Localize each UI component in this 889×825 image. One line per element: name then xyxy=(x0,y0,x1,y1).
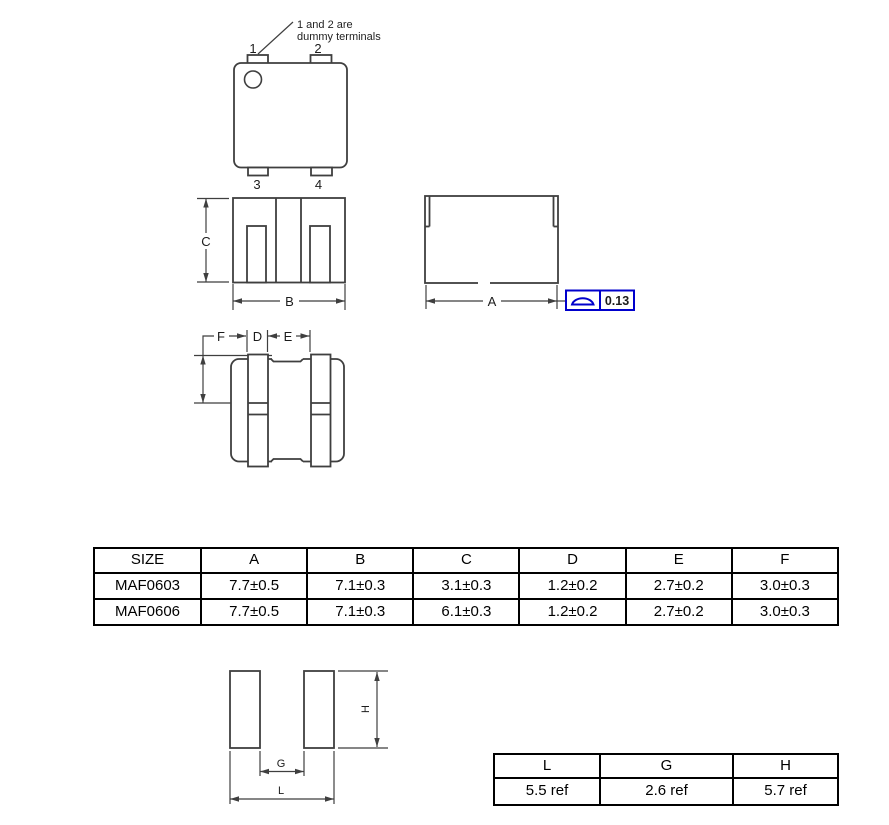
dim-b-label: B xyxy=(285,294,294,309)
cell-b: 7.1±0.3 xyxy=(307,599,413,625)
terminal-4-pad xyxy=(311,168,332,176)
top-view: 1 and 2 are dummy terminals 1 2 3 4 xyxy=(234,19,381,192)
col-header-h: H xyxy=(733,754,838,778)
pin1-indicator-circle xyxy=(245,71,262,88)
cell-size: MAF0606 xyxy=(94,599,201,625)
dummy-terminal-note-line2: dummy terminals xyxy=(297,31,381,43)
land-pattern-table: L G H 5.5 ref 2.6 ref 5.7 ref xyxy=(493,753,839,806)
col-header-a: A xyxy=(201,548,307,573)
front-terminal-left xyxy=(247,226,266,283)
callout-symbol-box xyxy=(566,291,600,311)
land-pad-right xyxy=(304,671,334,748)
dimension-table-header-row: SIZE A B C D E F xyxy=(94,548,838,573)
col-header-g: G xyxy=(600,754,733,778)
terminal-3-label: 3 xyxy=(253,177,260,192)
side-view: A 0.13 xyxy=(425,196,634,310)
cell-c: 6.1±0.3 xyxy=(413,599,519,625)
bottom-view: F D E xyxy=(194,329,344,467)
cell-a: 7.7±0.5 xyxy=(201,573,307,599)
cell-b: 7.1±0.3 xyxy=(307,573,413,599)
cell-c: 3.1±0.3 xyxy=(413,573,519,599)
cell-d: 1.2±0.2 xyxy=(519,599,625,625)
table-row-maf0606: MAF0606 7.7±0.5 7.1±0.3 6.1±0.3 1.2±0.2 … xyxy=(94,599,838,625)
dim-a-label: A xyxy=(488,294,497,309)
dim-h-label: H xyxy=(360,705,372,713)
dim-f-leader xyxy=(203,336,214,355)
front-view: C B xyxy=(197,198,345,310)
col-header-e: E xyxy=(626,548,732,573)
cell-e: 2.7±0.2 xyxy=(626,599,732,625)
bottom-terminal-strip-left xyxy=(248,355,268,467)
bottom-terminal-strip-right xyxy=(311,355,331,467)
land-pad-left xyxy=(230,671,260,748)
cell-size: MAF0603 xyxy=(94,573,201,599)
coplanarity-value: 0.13 xyxy=(605,294,629,308)
terminal-3-pad xyxy=(248,168,268,176)
dim-d-label: D xyxy=(253,329,262,344)
cell-f: 3.0±0.3 xyxy=(732,573,838,599)
datasheet-drawing-page: 1 and 2 are dummy terminals 1 2 3 4 C xyxy=(0,0,889,825)
col-header-size: SIZE xyxy=(94,548,201,573)
dim-c-label: C xyxy=(201,234,210,249)
col-header-c: C xyxy=(413,548,519,573)
dim-g-label: G xyxy=(277,758,286,770)
col-header-f: F xyxy=(732,548,838,573)
mechanical-drawing: 1 and 2 are dummy terminals 1 2 3 4 C xyxy=(0,0,889,825)
dim-l-label: L xyxy=(278,785,284,797)
cell-f: 3.0±0.3 xyxy=(732,599,838,625)
table-row-maf0603: MAF0603 7.7±0.5 7.1±0.3 3.1±0.3 1.2±0.2 … xyxy=(94,573,838,599)
terminal-2-label: 2 xyxy=(314,41,321,56)
cell-g-value: 2.6 ref xyxy=(600,778,733,805)
cell-d: 1.2±0.2 xyxy=(519,573,625,599)
dummy-terminal-note-line1: 1 and 2 are xyxy=(297,19,353,31)
cell-a: 7.7±0.5 xyxy=(201,599,307,625)
col-header-l: L xyxy=(494,754,600,778)
terminal-1-label: 1 xyxy=(249,41,256,56)
terminal-4-label: 4 xyxy=(315,177,322,192)
front-terminal-right xyxy=(310,226,330,283)
land-table-header-row: L G H xyxy=(494,754,838,778)
cell-e: 2.7±0.2 xyxy=(626,573,732,599)
land-table-value-row: 5.5 ref 2.6 ref 5.7 ref xyxy=(494,778,838,805)
dim-e-label: E xyxy=(284,329,293,344)
dim-f-label: F xyxy=(217,329,225,344)
note-leader-line xyxy=(258,22,293,54)
cell-l-value: 5.5 ref xyxy=(494,778,600,805)
side-body-outline xyxy=(425,196,558,283)
coplanarity-callout: 0.13 xyxy=(566,291,634,311)
land-pattern: H G L xyxy=(230,671,388,804)
cell-h-value: 5.7 ref xyxy=(733,778,838,805)
dimension-table: SIZE A B C D E F MAF0603 7.7±0.5 7.1±0.3… xyxy=(93,547,839,626)
col-header-b: B xyxy=(307,548,413,573)
col-header-d: D xyxy=(519,548,625,573)
